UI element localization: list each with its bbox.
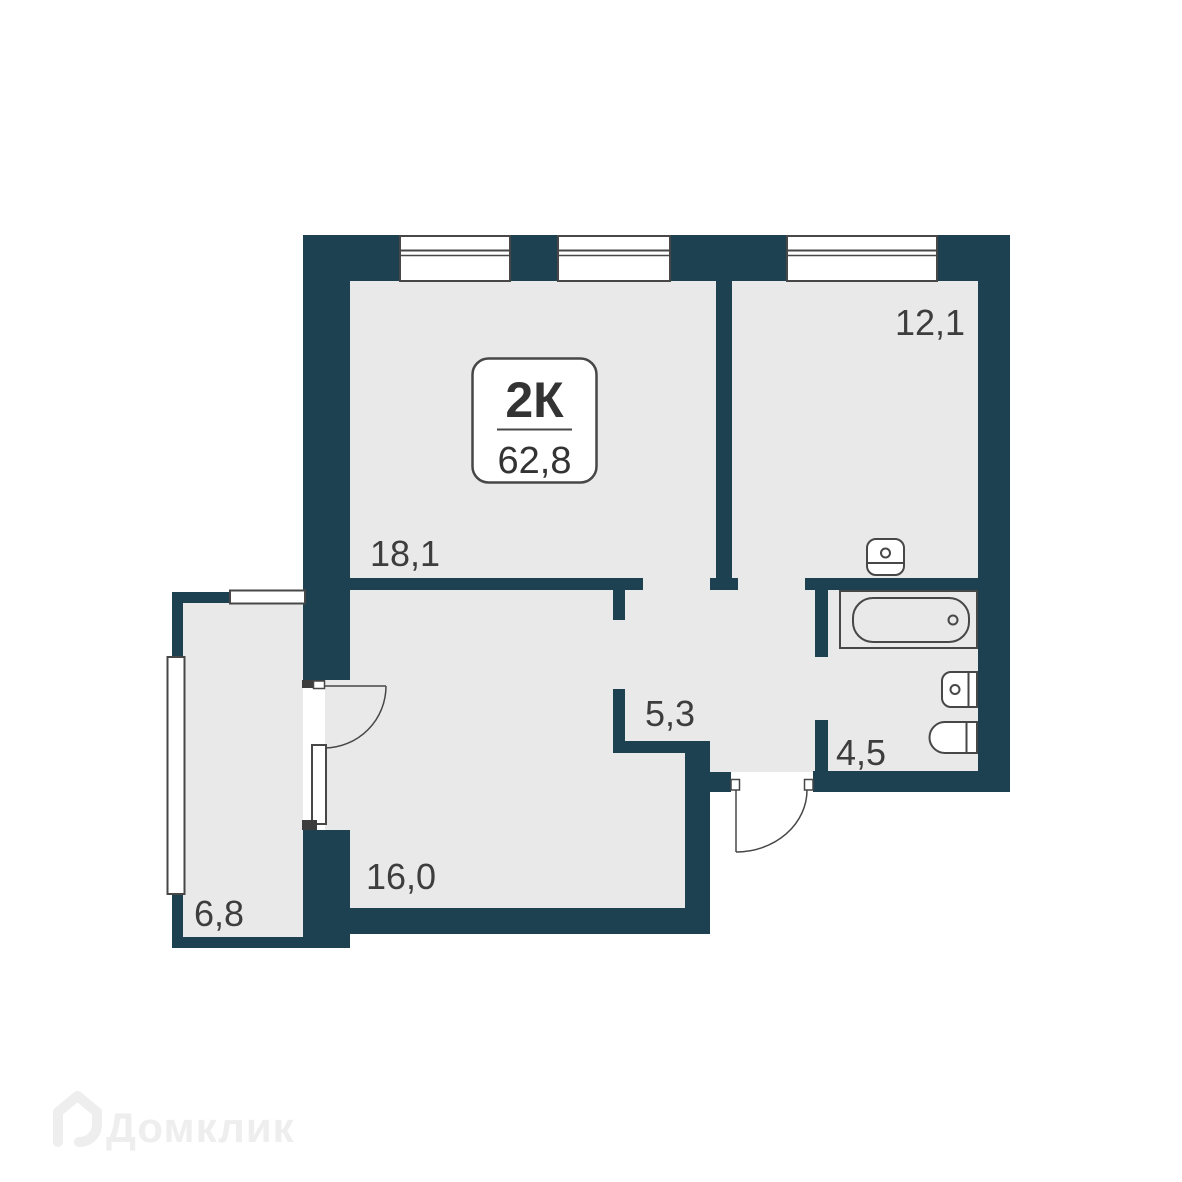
- floor-balcony: [183, 603, 303, 937]
- room-label-hallway: 5,3: [645, 693, 695, 734]
- sink: [942, 672, 977, 707]
- entrance-door-jamb-right: [805, 780, 814, 791]
- toilet: [929, 722, 977, 753]
- wall-hall-stub-upper: [613, 588, 625, 620]
- balcony-door-jamb: [314, 681, 325, 689]
- room-label-balcony: 6,8: [194, 893, 244, 934]
- wall-bathroom-left-upper: [815, 590, 828, 657]
- wall-room-divider: [716, 236, 732, 578]
- wall-living-bottom: [348, 578, 643, 590]
- wall-bottom: [303, 908, 710, 934]
- window-top-2: [558, 236, 670, 281]
- room-label-kitchen-living: 16,0: [366, 856, 436, 897]
- window-balcony-top: [230, 591, 305, 604]
- wall-room-divider-cap: [710, 578, 738, 590]
- wall-bathroom-bottom: [813, 771, 1010, 792]
- window-top-1: [400, 236, 510, 281]
- room-label-living: 18,1: [370, 533, 440, 574]
- water-heater: [867, 539, 904, 575]
- room-label-bathroom: 4,5: [836, 732, 886, 773]
- wall-right: [978, 235, 1010, 792]
- window-room-to-balcony: [312, 745, 326, 824]
- apartment-type-badge: 2К 62,8: [473, 359, 597, 483]
- badge-area-label: 62,8: [498, 440, 572, 482]
- window-balcony-left: [168, 657, 185, 894]
- balcony-window-sill-bottom: [302, 820, 317, 830]
- window-top-3: [787, 236, 937, 281]
- wall-entrance-stub: [685, 772, 731, 792]
- watermark-brand-text: Домклик: [106, 1104, 295, 1151]
- wall-hall-bottom: [613, 741, 710, 753]
- entrance-door-jamb-left: [731, 780, 740, 791]
- wall-left-upper: [303, 235, 350, 680]
- floor-kitchen-living-lower: [625, 752, 685, 910]
- wall-bedroom-bottom: [805, 578, 1010, 590]
- badge-type-label: 2К: [505, 372, 564, 428]
- floor-plan: 2К 62,8 18,1 12,1 5,3 4,5 16,0 6,8 Домкл…: [0, 0, 1182, 1182]
- room-label-bedroom: 12,1: [895, 302, 965, 343]
- floor-balcony-doorway: [325, 680, 350, 830]
- wall-bathroom-left-lower: [815, 720, 828, 772]
- wall-balcony-bottom: [172, 937, 303, 948]
